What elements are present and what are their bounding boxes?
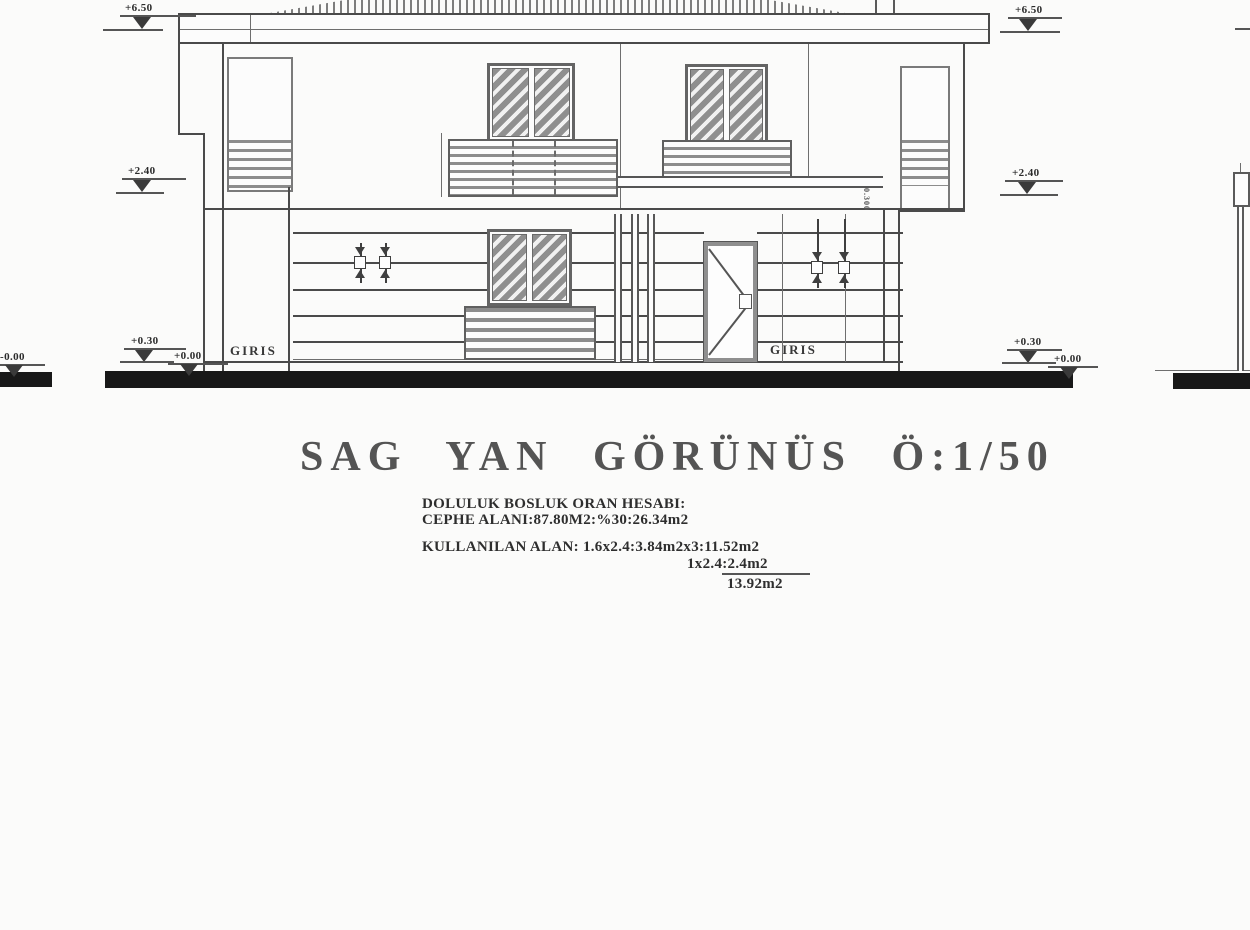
- roof-tile-hatch: [270, 0, 845, 13]
- window-pane: [534, 68, 571, 137]
- grid-line: [757, 315, 903, 317]
- vent-symbol: [375, 243, 397, 283]
- louver-panel-right: [900, 66, 950, 210]
- post: [631, 214, 639, 362]
- elevation-drawing-sheet: 0.300 GIRIS GIRIS +6.50 +6.50 +2.40 +2.4…: [0, 0, 1250, 930]
- louver-slats-left: [229, 140, 291, 190]
- entrance-door: [704, 242, 757, 362]
- door-handle: [739, 294, 752, 309]
- balcony-railing-right: [662, 140, 792, 178]
- drawing-title: SAG YAN GÖRÜNÜS Ö:1/50: [300, 433, 940, 481]
- window-pane: [492, 68, 529, 137]
- entrance-label-right: GIRIS: [770, 342, 817, 358]
- ground-line-far-right: [1155, 370, 1250, 371]
- wall-left-outer: [178, 44, 180, 133]
- window-pane: [492, 234, 527, 301]
- calc-used-area: KULLANILAN ALAN: 1.6x2.4:3.84m2x3:11.52m…: [422, 539, 759, 556]
- calc-used-area-2: 1x2.4:2.4m2: [687, 556, 768, 573]
- grid-line: [757, 232, 903, 234]
- railing-post: [554, 141, 556, 195]
- calc-heading: DOLULUK BOSLUK ORAN HESABI:: [422, 496, 686, 513]
- grid-line: [757, 262, 903, 264]
- adjacent-drawing-column: [1237, 207, 1244, 371]
- vent-symbol: [834, 248, 856, 288]
- ground-bar-main: [105, 371, 1073, 388]
- balcony-notch: [441, 133, 442, 197]
- chimney: [875, 0, 895, 13]
- ground-bar-far-right: [1173, 373, 1250, 389]
- adjacent-drawing-box: [1233, 172, 1250, 207]
- grid-line: [757, 289, 903, 291]
- window-ground: [487, 229, 572, 306]
- entrance-recess-corner: [288, 187, 290, 372]
- wall-left-lower: [203, 133, 205, 372]
- balcony-slab: [618, 176, 883, 188]
- louver-slats-right: [902, 140, 948, 186]
- vent-symbol: [807, 248, 829, 288]
- grid-vertical: [782, 214, 783, 362]
- facade-base-line: [203, 361, 903, 363]
- grid-line: [757, 341, 903, 343]
- planter-louvers: [464, 306, 596, 360]
- overhang-step: [898, 210, 965, 212]
- wall-right-column-b: [898, 210, 900, 372]
- adjacent-drawing-tick: [1240, 163, 1241, 172]
- railing-post: [512, 141, 514, 195]
- louver-panel-left: [227, 57, 293, 192]
- fascia-mid-line: [180, 29, 988, 30]
- calc-sum-line: [722, 573, 810, 575]
- calc-total: 13.92m2: [727, 576, 783, 593]
- window-upper-left: [487, 63, 575, 142]
- window-pane: [532, 234, 567, 301]
- fascia-seam: [250, 15, 251, 42]
- floor-slab-line: [203, 208, 965, 210]
- post: [647, 214, 655, 362]
- wall-left-ledge: [178, 133, 205, 135]
- vent-symbol: [350, 243, 372, 283]
- facade-joint-right: [808, 44, 809, 177]
- calc-facade-area: CEPHE ALANI:87.80M2:%30:26.34m2: [422, 512, 688, 529]
- adjacent-marker-line: [1235, 28, 1250, 30]
- roof-fascia-band: [178, 13, 990, 44]
- entrance-label-left: GIRIS: [230, 343, 277, 359]
- wall-right-outer: [963, 44, 965, 210]
- balcony-railing-left: [448, 139, 618, 197]
- post: [614, 214, 622, 362]
